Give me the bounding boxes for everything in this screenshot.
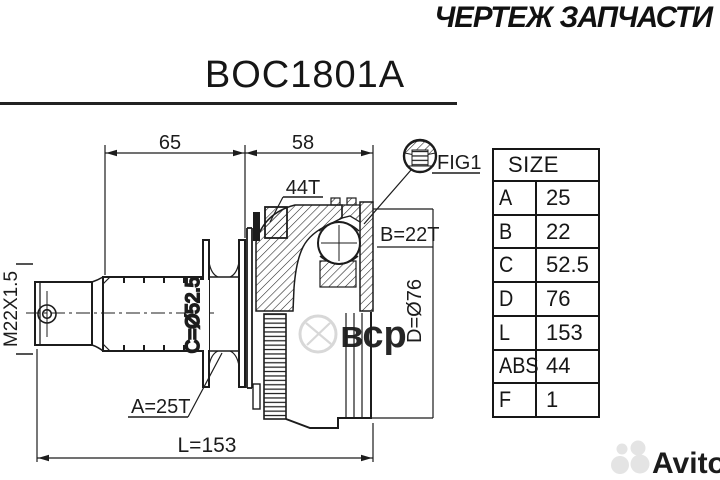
part-drawing-page: { "header": { "title": "ЧЕРТЕЖ ЗАПЧАСТИ"… (0, 0, 720, 480)
boot-diameter-label: C=Ø52.5 (183, 277, 204, 354)
avito-watermark-text: Avito (652, 447, 720, 480)
size-value: 44 (537, 351, 598, 383)
table-row: C 52.5 (494, 249, 598, 283)
thread-label: M22X1.5 (1, 271, 22, 347)
outer-spline-label: B=22T (380, 224, 439, 246)
size-key: B (494, 216, 537, 248)
table-row: ABS 44 (494, 351, 598, 385)
boot-groove: C=Ø52.5 (183, 240, 245, 387)
thread-dimension: M22X1.5 (1, 264, 33, 354)
table-row: F 1 (494, 384, 598, 416)
size-value: 25 (537, 182, 598, 214)
avito-logo-icon (611, 441, 650, 475)
inner-spline-callout: A=25T (128, 353, 222, 418)
fig1-label: FIG1 (437, 152, 481, 174)
fig1-detail: FIG1 (364, 140, 481, 224)
center-watermark-text: вср (340, 314, 407, 356)
table-row: A 25 (494, 182, 598, 216)
housing-top-right-hatched (342, 205, 360, 222)
dimension-65: 65 (105, 132, 245, 275)
size-table-header: SIZE (494, 150, 598, 182)
size-value: 76 (537, 283, 598, 315)
outer-spline-section (360, 202, 373, 311)
groove-bump (331, 198, 340, 205)
abs-teeth-label: 44T (286, 177, 320, 199)
dim-65-label: 65 (159, 132, 181, 154)
groove-bump (347, 198, 356, 205)
table-row: D 76 (494, 283, 598, 317)
dim-58-label: 58 (292, 132, 314, 154)
dimension-length: L=153 (37, 349, 373, 462)
size-value: 1 (537, 384, 598, 416)
size-table: SIZE A 25 B 22 C 52.5 D 76 L 153 ABS 44 … (492, 148, 600, 418)
avito-watermark: Avito (611, 441, 720, 480)
size-key: ABS (494, 351, 537, 383)
size-value: 22 (537, 216, 598, 248)
size-value: 153 (537, 317, 598, 349)
cv-joint-technical-drawing: M22X1.5 C=Ø52.5 (0, 0, 720, 480)
outer-diameter-label: D=Ø76 (404, 279, 426, 343)
length-label: L=153 (178, 434, 237, 457)
center-watermark: вср (300, 314, 407, 356)
abs-tone-ring-teeth (264, 314, 286, 419)
size-key: F (494, 384, 537, 416)
inner-spline-label: A=25T (131, 396, 190, 418)
size-value: 52.5 (537, 249, 598, 281)
threaded-stub (35, 277, 103, 351)
table-row: B 22 (494, 216, 598, 250)
table-row: L 153 (494, 317, 598, 351)
size-key: A (494, 182, 537, 214)
size-key: L (494, 317, 537, 349)
size-key: C (494, 249, 537, 281)
size-key: D (494, 283, 537, 315)
